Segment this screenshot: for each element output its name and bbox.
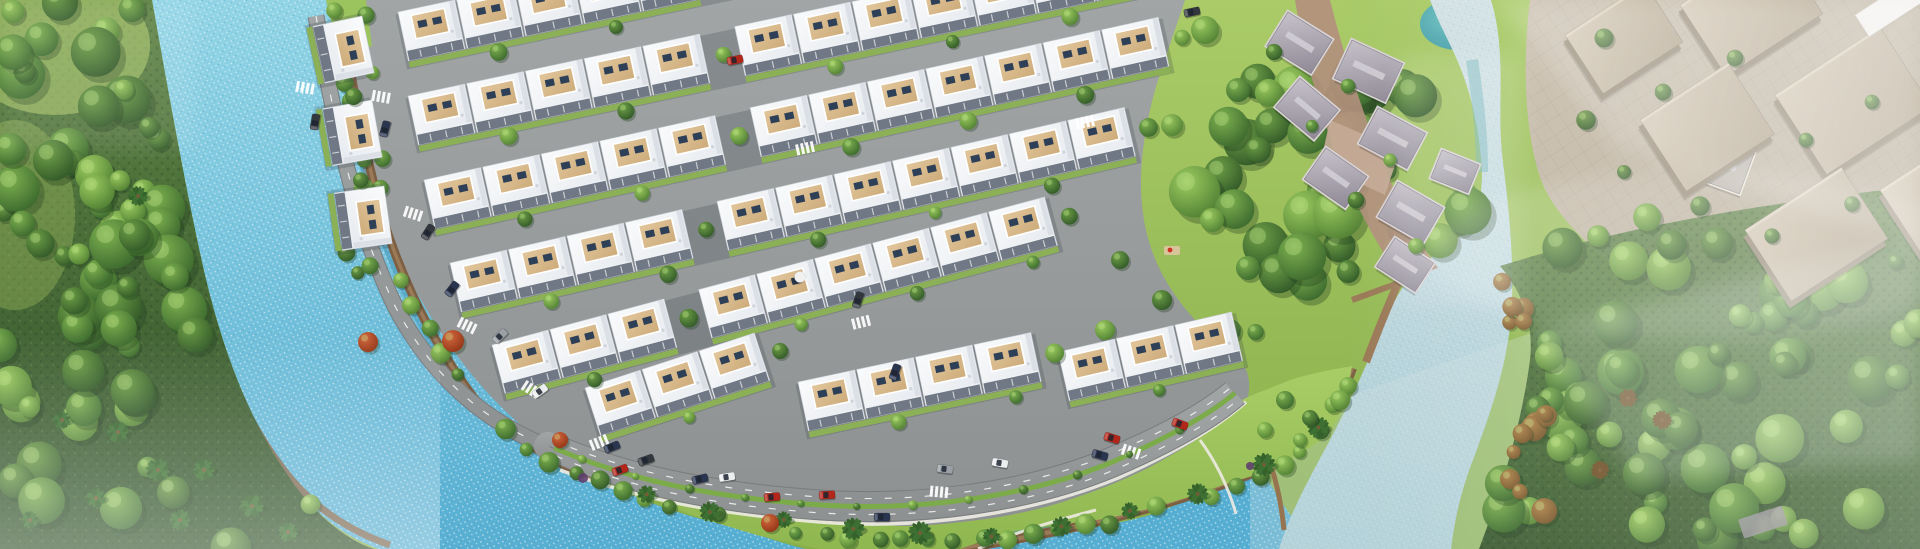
tree-highlight xyxy=(1177,32,1183,38)
tree-canopy xyxy=(827,59,843,75)
tree-highlight xyxy=(718,49,724,55)
house-row xyxy=(326,183,392,255)
tree-highlight xyxy=(168,292,184,308)
tree-canopy xyxy=(853,503,860,510)
tree-canopy xyxy=(761,514,779,532)
tree-canopy xyxy=(617,102,634,119)
aerial-render-canvas xyxy=(0,0,1920,549)
tree-canopy xyxy=(1191,16,1219,44)
tree-highlight xyxy=(124,201,133,210)
skylight-window xyxy=(367,205,375,215)
tree-highlight xyxy=(1231,480,1237,486)
tree-canopy xyxy=(1306,120,1318,132)
tree-highlight xyxy=(700,224,706,230)
tree-canopy xyxy=(495,419,516,440)
tree-highlight xyxy=(947,535,953,541)
tree-canopy xyxy=(1153,384,1165,396)
tree-highlight xyxy=(395,274,401,280)
tree-canopy xyxy=(1200,208,1224,232)
tree-highlight xyxy=(965,496,968,499)
tree-highlight xyxy=(1114,253,1120,259)
tree-canopy xyxy=(79,173,114,208)
tree-canopy xyxy=(500,127,518,145)
tree-canopy xyxy=(1174,30,1190,46)
tree-highlight xyxy=(854,504,857,507)
tree-canopy xyxy=(929,206,941,218)
palm-trunk xyxy=(1060,525,1064,529)
tree-highlight xyxy=(502,129,508,135)
tree-canopy xyxy=(609,20,623,34)
tree-highlight xyxy=(546,295,552,301)
tree-highlight xyxy=(1333,392,1340,399)
tree-highlight xyxy=(120,279,128,287)
tree-highlight xyxy=(812,233,818,239)
tree-canopy xyxy=(1161,114,1183,136)
tree-canopy xyxy=(587,372,602,387)
tree-highlight xyxy=(165,266,175,276)
car-glass xyxy=(996,459,1002,466)
tree-canopy xyxy=(679,309,698,328)
tree-highlight xyxy=(355,174,361,180)
house-row xyxy=(314,97,382,171)
tree-highlight xyxy=(875,534,881,540)
tree-highlight xyxy=(1239,259,1248,268)
tree-canopy xyxy=(393,273,408,288)
tree-highlight xyxy=(71,246,79,254)
tree-canopy xyxy=(1100,515,1119,534)
tree-highlight xyxy=(845,140,851,146)
palm-trunk xyxy=(851,527,855,531)
tree-canopy xyxy=(1209,107,1249,147)
car-glass xyxy=(723,474,729,481)
tree-highlight xyxy=(364,259,370,265)
tree-canopy xyxy=(1027,256,1040,269)
roof-panel xyxy=(356,199,384,236)
tree-canopy xyxy=(543,293,559,309)
tree-highlight xyxy=(589,374,595,380)
tree-highlight xyxy=(1229,81,1238,90)
tree-highlight xyxy=(1046,179,1052,185)
tree-canopy xyxy=(873,532,889,548)
tree-highlight xyxy=(13,214,22,223)
tree-canopy xyxy=(1293,433,1307,447)
tree-canopy xyxy=(326,2,342,18)
tree-canopy xyxy=(820,527,834,541)
tree-highlight xyxy=(1048,346,1055,353)
car-glass xyxy=(879,514,884,520)
tree-canopy xyxy=(683,411,695,423)
tree-canopy xyxy=(795,318,808,331)
tree-highlight xyxy=(1176,172,1195,191)
tree-canopy xyxy=(161,263,189,291)
tree-highlight xyxy=(424,322,430,328)
tree-canopy xyxy=(842,138,860,156)
tree-canopy xyxy=(1228,478,1245,495)
tree-highlight xyxy=(1103,518,1110,525)
tree-highlight xyxy=(106,315,119,328)
masterplan-scene xyxy=(0,0,1920,549)
tree-highlight xyxy=(1250,326,1256,332)
tree-highlight xyxy=(88,263,98,273)
tree-highlight xyxy=(662,268,668,274)
tree-canopy xyxy=(685,484,694,493)
tree-highlight xyxy=(571,468,576,473)
tree-canopy xyxy=(959,112,977,130)
palm-trunk xyxy=(1128,509,1132,513)
tree-canopy xyxy=(892,530,909,547)
tree-canopy xyxy=(68,243,89,264)
tree-highlight xyxy=(1259,424,1265,430)
tree-highlight xyxy=(492,45,498,51)
tree-highlight xyxy=(1079,88,1085,94)
tree-highlight xyxy=(742,495,745,498)
tree-highlight xyxy=(685,413,689,417)
townhouse-unit xyxy=(323,100,382,166)
purple-shrub xyxy=(1246,462,1254,470)
tree-highlight xyxy=(542,454,549,461)
tree-canopy xyxy=(810,232,826,248)
tree-canopy xyxy=(1075,514,1096,535)
tree-highlight xyxy=(830,60,836,66)
tree-canopy xyxy=(520,443,533,456)
tree-highlight xyxy=(616,483,623,490)
tree-highlight xyxy=(1259,82,1269,92)
tree-highlight xyxy=(84,178,97,191)
tree-canopy xyxy=(1009,390,1022,403)
tree-canopy xyxy=(539,452,560,473)
tree-canopy xyxy=(908,500,918,510)
tree-canopy xyxy=(659,266,676,283)
tree-canopy xyxy=(1147,497,1166,516)
tree-highlight xyxy=(1063,210,1069,216)
tree-canopy xyxy=(117,276,138,297)
tree-highlight xyxy=(1098,322,1105,329)
car-glass xyxy=(768,494,774,500)
tree-highlight xyxy=(1028,257,1033,262)
tree-highlight xyxy=(733,129,739,135)
palm-trunk xyxy=(645,493,649,497)
tree-canopy xyxy=(772,343,788,359)
tree-highlight xyxy=(1220,194,1234,208)
tree-highlight xyxy=(360,9,366,15)
tree-highlight xyxy=(96,225,114,243)
tree-canopy xyxy=(1139,118,1158,137)
tree-canopy xyxy=(1257,422,1273,438)
tree-canopy xyxy=(26,229,54,257)
tree-highlight xyxy=(1278,458,1285,465)
tree-highlight xyxy=(1203,211,1212,220)
haze-top-left xyxy=(0,0,195,150)
car-highlight xyxy=(819,492,822,499)
tree-highlight xyxy=(1304,412,1310,418)
tree-canopy xyxy=(1302,410,1318,426)
tree-canopy xyxy=(452,368,465,381)
car xyxy=(936,464,954,475)
tree-canopy xyxy=(1061,8,1078,25)
tree-canopy xyxy=(1226,78,1250,102)
tree-canopy xyxy=(1245,137,1271,163)
tree-highlight xyxy=(798,501,801,504)
car xyxy=(819,491,836,501)
tree-canopy xyxy=(10,211,36,237)
car xyxy=(874,513,891,523)
tree-canopy xyxy=(797,500,804,507)
tree-highlight xyxy=(405,298,411,304)
tree-canopy xyxy=(361,257,378,274)
tree-highlight xyxy=(593,473,600,480)
tree-highlight xyxy=(1020,486,1023,489)
tree-highlight xyxy=(0,171,17,188)
tree-canopy xyxy=(632,473,639,480)
tree-highlight xyxy=(1214,111,1228,125)
tree-highlight xyxy=(686,485,689,488)
tree-highlight xyxy=(65,291,75,301)
dome-pavilion xyxy=(795,272,806,283)
tree-canopy xyxy=(891,414,907,430)
tree-canopy xyxy=(1023,524,1043,544)
tree-canopy xyxy=(634,185,649,200)
skylight-window xyxy=(369,219,377,229)
palm-trunk xyxy=(1317,426,1321,430)
tree-canopy xyxy=(698,222,714,238)
tree-highlight xyxy=(445,333,453,341)
tree-canopy xyxy=(944,533,960,549)
tree-canopy xyxy=(1061,208,1078,225)
tree-highlight xyxy=(948,36,953,41)
roof-panel xyxy=(345,113,375,151)
tree-canopy xyxy=(1266,44,1282,60)
tree-highlight xyxy=(519,213,525,219)
tree-highlight xyxy=(1011,392,1016,397)
tree-highlight xyxy=(554,434,560,440)
car xyxy=(764,492,781,503)
tree-canopy xyxy=(1076,86,1094,104)
tree-highlight xyxy=(1149,499,1156,506)
tree-highlight xyxy=(81,159,95,173)
tree-highlight xyxy=(579,456,582,459)
tree-highlight xyxy=(791,528,796,533)
palm-trunk xyxy=(782,518,786,522)
tree-highlight xyxy=(1285,238,1302,255)
playground-equipment xyxy=(1168,248,1173,253)
tree-highlight xyxy=(682,311,689,318)
tree-highlight xyxy=(1164,117,1172,125)
tree-canopy xyxy=(1247,324,1263,340)
tree-highlight xyxy=(1074,471,1077,474)
tree-highlight xyxy=(611,22,616,27)
palm-trunk xyxy=(136,194,140,198)
tree-canopy xyxy=(1044,177,1060,193)
tree-canopy xyxy=(789,527,802,540)
tree-highlight xyxy=(633,474,636,477)
tree-highlight xyxy=(453,370,458,375)
tree-highlight xyxy=(931,208,935,212)
tree-highlight xyxy=(1155,292,1162,299)
tree-canopy xyxy=(578,455,586,463)
tree-highlight xyxy=(353,268,358,273)
tree-highlight xyxy=(328,4,334,10)
tree-highlight xyxy=(894,532,900,538)
tree-canopy xyxy=(353,172,368,187)
tree-canopy xyxy=(1019,485,1028,494)
palm-trunk xyxy=(990,534,994,538)
tree-canopy xyxy=(61,287,88,314)
tree-canopy xyxy=(110,170,131,191)
tree-highlight xyxy=(962,114,968,120)
tree-canopy xyxy=(1126,451,1133,458)
car-highlight xyxy=(764,494,768,501)
haze-right-gradient xyxy=(1340,0,1920,549)
tree-highlight xyxy=(102,290,119,307)
tree-highlight xyxy=(1078,516,1085,523)
tree-highlight xyxy=(57,249,64,256)
tree-canopy xyxy=(119,219,151,251)
tree-highlight xyxy=(664,502,669,507)
tree-canopy xyxy=(1276,391,1294,409)
tree-canopy xyxy=(591,470,610,489)
tree-highlight xyxy=(1245,68,1258,81)
mist-bottom-left xyxy=(0,330,440,549)
tree-highlight xyxy=(620,105,626,111)
tree-canopy xyxy=(552,432,568,448)
tree-canopy xyxy=(946,35,959,48)
tree-highlight xyxy=(1249,140,1258,149)
tree-canopy xyxy=(345,88,362,105)
tree-canopy xyxy=(1278,232,1326,280)
tree-highlight xyxy=(1064,10,1070,16)
tree-highlight xyxy=(1249,228,1266,245)
tree-canopy xyxy=(964,495,972,503)
tree-canopy xyxy=(1152,290,1172,310)
tree-canopy xyxy=(442,330,464,352)
tree-canopy xyxy=(614,481,633,500)
tree-canopy xyxy=(1236,256,1260,280)
palm-trunk xyxy=(1196,492,1200,496)
car-glass xyxy=(311,120,318,126)
tree-highlight xyxy=(498,421,505,428)
palm-trunk xyxy=(708,510,712,514)
tree-highlight xyxy=(637,187,643,193)
tree-canopy xyxy=(730,127,748,145)
tree-canopy xyxy=(1045,344,1064,363)
tree-highlight xyxy=(1268,46,1274,52)
tree-highlight xyxy=(796,319,801,324)
tree-highlight xyxy=(912,288,917,293)
tree-highlight xyxy=(113,173,120,180)
tree-highlight xyxy=(1264,258,1278,272)
tree-canopy xyxy=(741,494,749,502)
car-highlight xyxy=(875,514,878,521)
tree-highlight xyxy=(1295,435,1300,440)
tree-canopy xyxy=(517,211,532,226)
tree-highlight xyxy=(822,528,827,533)
palm-trunk xyxy=(1262,463,1266,467)
tree-highlight xyxy=(909,501,912,504)
tree-highlight xyxy=(774,345,780,351)
tree-highlight xyxy=(1142,120,1149,127)
tree-canopy xyxy=(402,296,420,314)
car-glass xyxy=(941,466,947,473)
townhouse-unit xyxy=(334,186,392,250)
tree-canopy xyxy=(1111,251,1129,269)
tree-highlight xyxy=(893,416,899,422)
tree-highlight xyxy=(764,516,770,522)
tree-highlight xyxy=(1308,121,1312,125)
tree-highlight xyxy=(1279,393,1285,399)
tree-highlight xyxy=(1260,112,1273,125)
tree-highlight xyxy=(1290,196,1308,214)
tree-highlight xyxy=(1127,452,1130,455)
tree-highlight xyxy=(347,90,353,96)
tree-highlight xyxy=(123,223,134,234)
tree-highlight xyxy=(522,444,527,449)
tree-canopy xyxy=(1095,320,1115,340)
tree-canopy xyxy=(910,286,925,301)
purple-shrub xyxy=(578,473,588,483)
tree-highlight xyxy=(1195,19,1205,29)
tree-canopy xyxy=(662,500,677,515)
tree-highlight xyxy=(1155,386,1159,390)
tree-canopy xyxy=(1073,470,1082,479)
tree-canopy xyxy=(490,43,508,61)
palm-trunk xyxy=(918,531,922,535)
tree-highlight xyxy=(1026,526,1033,533)
tree-highlight xyxy=(30,233,40,243)
car-glass xyxy=(823,492,828,498)
